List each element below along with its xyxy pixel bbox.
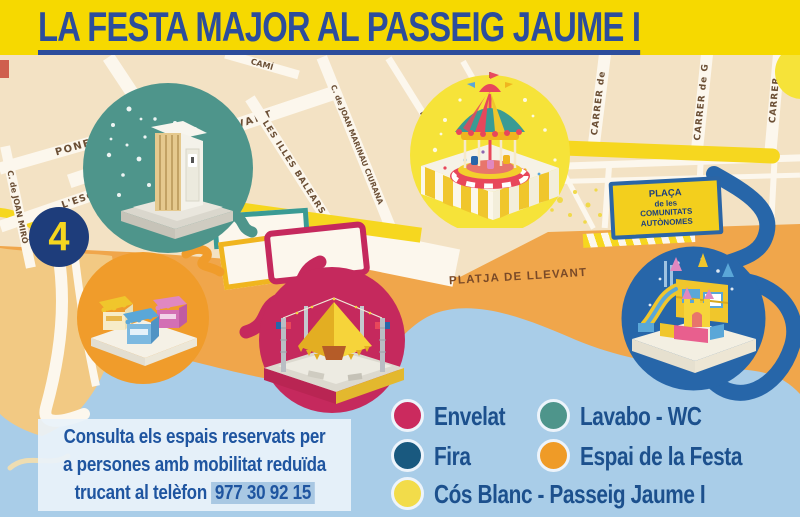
castle-illustration: [620, 245, 767, 392]
tent-illustration: [252, 262, 416, 414]
legend-label-envelat: Envelat: [434, 400, 505, 432]
page-title: LA FESTA MAJOR AL PASSEIG JAUME I: [38, 5, 640, 55]
accessibility-info-text: Consulta els espais reservats per a pers…: [61, 423, 327, 507]
marker-espai-festa-stalls: [77, 252, 209, 384]
marker-fira-castle: [620, 245, 767, 392]
marker-cos-blanc-carousel: [405, 70, 575, 228]
festa-major-map-poster: BARCELONA CARRER de LLEVANT LES ILLES BA…: [0, 0, 800, 517]
carousel-illustration: [405, 70, 575, 228]
legend-label-cos-blanc: Cós Blanc - Passeig Jaume I: [434, 478, 705, 510]
legend-label-fira: Fira: [434, 440, 471, 472]
header-bar: LA FESTA MAJOR AL PASSEIG JAUME I: [0, 0, 800, 55]
placa-sign-line3: COMUNITATS AUTÒNOMES: [614, 205, 719, 230]
legend-label-espai: Espai de la Festa: [580, 440, 742, 472]
area-number-badge: 4: [29, 207, 89, 267]
placa-comunitats-sign: PLAÇA de les COMUNITATS AUTÒNOMES: [609, 176, 724, 240]
phone-number: 977 30 92 15: [211, 482, 314, 504]
area-number: 4: [48, 214, 69, 260]
marker-envelat-tent: [252, 262, 416, 414]
info-line-2: a persones amb mobilitat reduïda: [61, 451, 327, 479]
marker-lavabo-wc: [83, 83, 253, 253]
legend-label-lavabo: Lavabo - WC: [580, 400, 702, 432]
info-line-3: trucant al telèfon 977 30 92 15: [61, 479, 327, 507]
legend-swatch-espai: [537, 439, 570, 472]
info-line-1: Consulta els espais reservats per: [61, 423, 327, 451]
stalls-illustration: [77, 252, 209, 384]
corner-red-block: [0, 60, 9, 78]
legend-swatch-lavabo: [537, 399, 570, 432]
toilet-illustration: [83, 83, 253, 253]
legend-swatch-cos-blanc: [391, 477, 424, 510]
accessibility-info-box: Consulta els espais reservats per a pers…: [38, 419, 351, 511]
legend-swatch-envelat: [391, 399, 424, 432]
legend-swatch-fira: [391, 439, 424, 472]
